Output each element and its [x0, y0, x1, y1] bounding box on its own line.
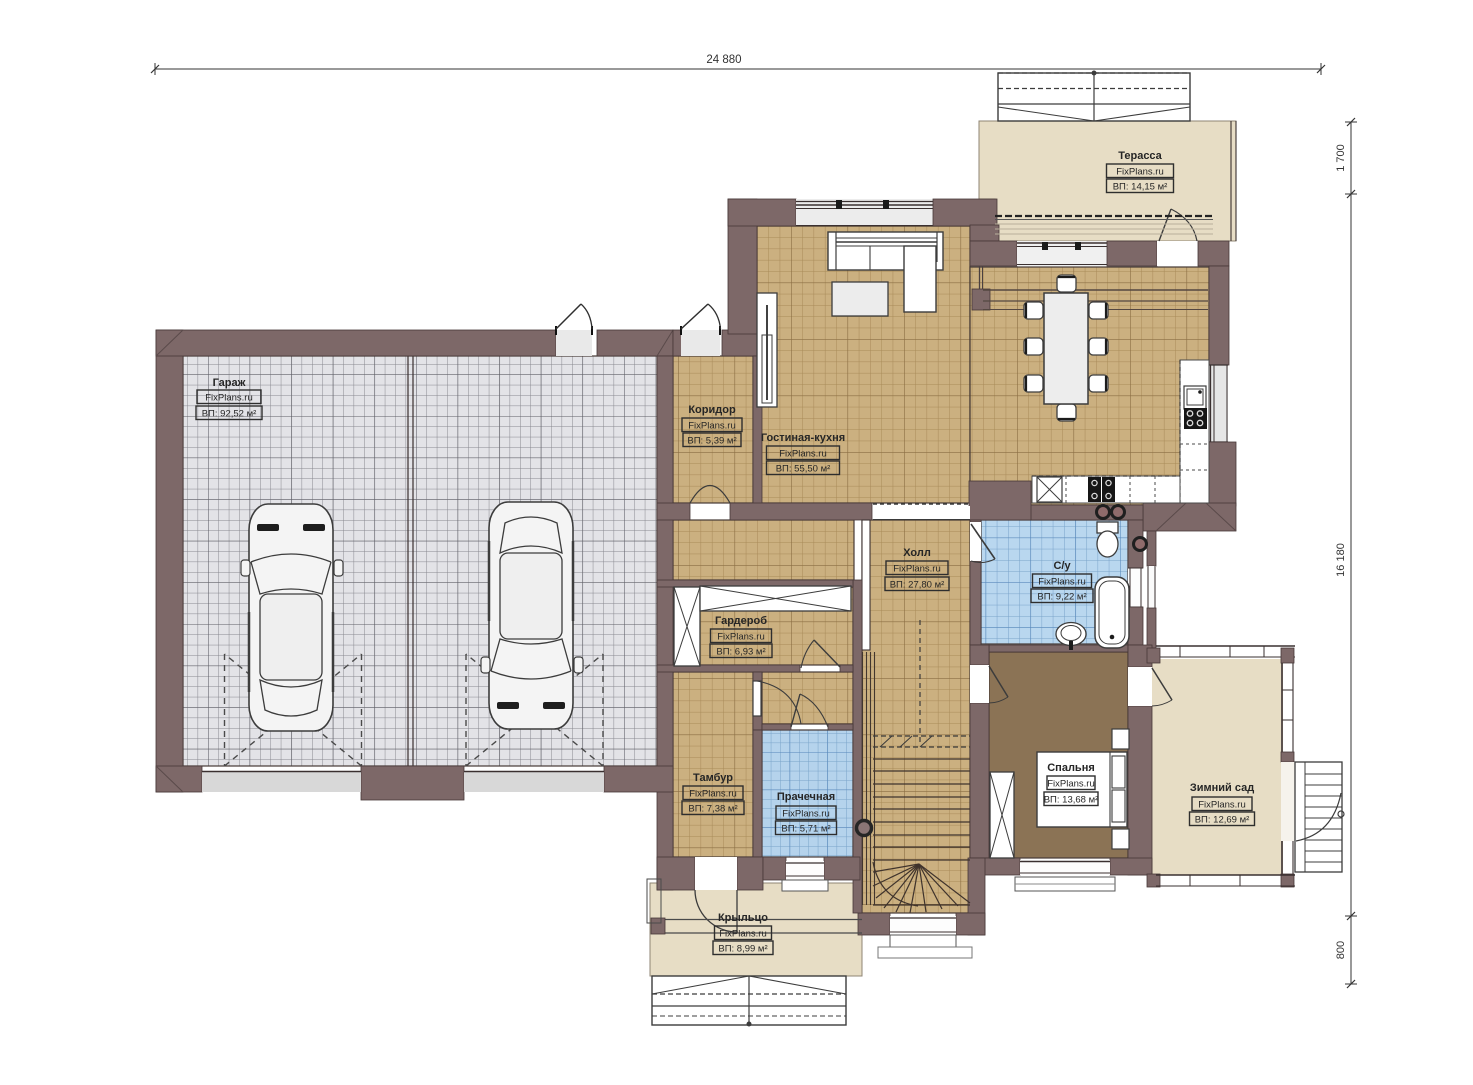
svg-text:FixPlans.ru: FixPlans.ru	[1047, 779, 1095, 790]
svg-text:Зимний сад: Зимний сад	[1190, 782, 1254, 794]
svg-text:FixPlans.ru: FixPlans.ru	[782, 809, 830, 820]
svg-text:ВП: 5,39 м²: ВП: 5,39 м²	[687, 436, 736, 447]
svg-text:16 180: 16 180	[1335, 543, 1347, 577]
svg-text:Гараж: Гараж	[213, 377, 246, 389]
svg-text:FixPlans.ru: FixPlans.ru	[1038, 577, 1086, 588]
svg-text:FixPlans.ru: FixPlans.ru	[717, 632, 765, 643]
svg-text:Гостиная-кухня: Гостиная-кухня	[761, 432, 845, 444]
svg-text:Терасса: Терасса	[1118, 150, 1162, 162]
svg-text:Коридор: Коридор	[688, 404, 736, 416]
svg-text:800: 800	[1335, 941, 1347, 959]
svg-text:ВП: 8,99 м²: ВП: 8,99 м²	[718, 944, 767, 955]
svg-text:Гардероб: Гардероб	[715, 615, 767, 627]
svg-text:Прачечная: Прачечная	[777, 791, 835, 803]
svg-text:ВП: 9,22 м²: ВП: 9,22 м²	[1037, 592, 1086, 603]
svg-text:24 880: 24 880	[706, 54, 741, 66]
svg-text:ВП: 13,68 м²: ВП: 13,68 м²	[1044, 795, 1099, 806]
svg-text:Холл: Холл	[903, 547, 931, 559]
svg-text:FixPlans.ru: FixPlans.ru	[779, 449, 827, 460]
svg-text:ВП: 5,71 м²: ВП: 5,71 м²	[781, 824, 830, 835]
svg-text:Тамбур: Тамбур	[693, 772, 733, 784]
svg-text:ВП: 27,80 м²: ВП: 27,80 м²	[890, 580, 945, 591]
svg-text:FixPlans.ru: FixPlans.ru	[719, 929, 767, 940]
svg-text:FixPlans.ru: FixPlans.ru	[689, 789, 737, 800]
svg-text:С/у: С/у	[1053, 560, 1071, 572]
svg-text:ВП: 7,38 м²: ВП: 7,38 м²	[688, 804, 737, 815]
svg-text:Крыльцо: Крыльцо	[718, 912, 768, 924]
svg-text:FixPlans.ru: FixPlans.ru	[688, 421, 736, 432]
svg-text:FixPlans.ru: FixPlans.ru	[1116, 167, 1164, 178]
svg-text:FixPlans.ru: FixPlans.ru	[893, 564, 941, 575]
svg-text:1 700: 1 700	[1335, 144, 1347, 172]
svg-text:ВП: 92,52 м²: ВП: 92,52 м²	[202, 409, 257, 420]
svg-text:ВП: 6,93 м²: ВП: 6,93 м²	[716, 647, 765, 658]
svg-text:ВП: 12,69 м²: ВП: 12,69 м²	[1195, 815, 1250, 826]
svg-text:FixPlans.ru: FixPlans.ru	[205, 393, 253, 404]
svg-text:Спальня: Спальня	[1047, 762, 1095, 774]
svg-text:ВП: 55,50 м²: ВП: 55,50 м²	[776, 464, 831, 475]
svg-text:FixPlans.ru: FixPlans.ru	[1198, 800, 1246, 811]
svg-text:ВП: 14,15 м²: ВП: 14,15 м²	[1113, 182, 1168, 193]
